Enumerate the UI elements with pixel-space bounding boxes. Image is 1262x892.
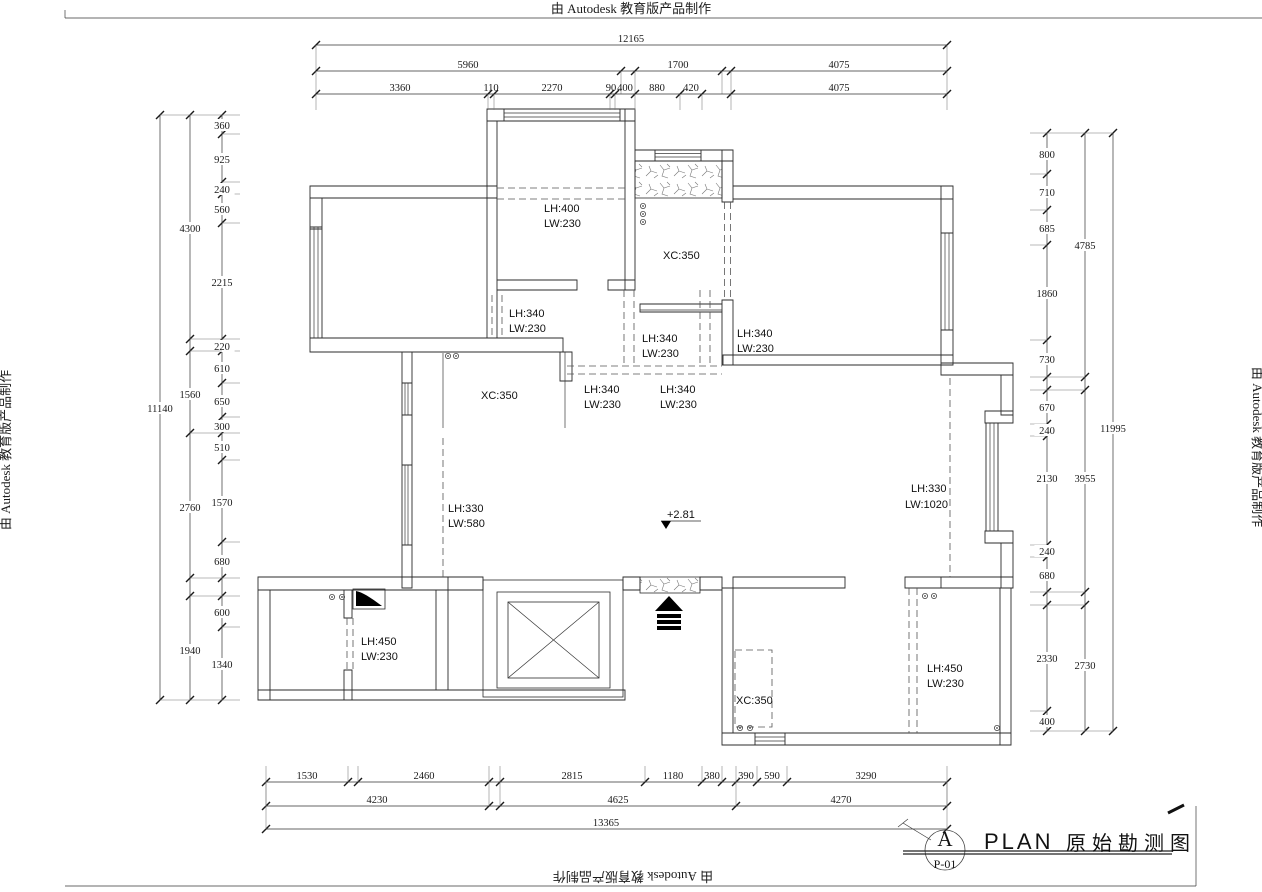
fixture-circle-dot [455, 355, 457, 357]
dim-text: 90 [606, 83, 617, 94]
watermark-bottom: 由 Autodesk 教育版产品制作 [553, 869, 713, 884]
dim-text: 730 [1039, 355, 1055, 366]
dim-text: 685 [1039, 224, 1055, 235]
stove-symbol [353, 589, 385, 609]
dim-text: 560 [214, 205, 230, 216]
dim-text: 1530 [297, 771, 318, 782]
dim-text: 600 [214, 608, 230, 619]
dim-text: 300 [214, 422, 230, 433]
dim-text: 110 [483, 83, 498, 94]
dim-text: 5960 [458, 60, 479, 71]
dimension-chain-right-outer: 11995 [1085, 129, 1132, 735]
dim-text: 4270 [831, 795, 852, 806]
dim-text: 2270 [542, 83, 563, 94]
plan-word: PLAN [984, 829, 1053, 854]
plan-label: LH:340 [737, 328, 772, 340]
plan-label-layer: LH:400LW:230XC:350LH:340LW:230LH:340LW:2… [361, 203, 964, 707]
dim-text: 880 [649, 83, 665, 94]
watermark-left: 由 Autodesk 教育版产品制作 [0, 370, 13, 530]
fixture-circle-dot [642, 221, 644, 223]
dimension-chain-bottom-mid: 423046254270 [262, 782, 951, 810]
plan-label: LW:230 [584, 399, 621, 411]
plan-label: LW:230 [660, 399, 697, 411]
dimension-chain-bottom-inner: 15302460281511803803905903290 [262, 766, 951, 786]
plan-label: LH:330 [448, 503, 483, 515]
plan-label: LH:340 [660, 384, 695, 396]
dim-text: 4785 [1075, 241, 1096, 252]
plan-label: XC:350 [736, 695, 773, 707]
plan-label: XC:350 [663, 250, 700, 262]
sheet-frame [65, 10, 1262, 886]
plan-label: LH:340 [584, 384, 619, 396]
plan-label: LH:340 [509, 308, 544, 320]
dim-text: 1700 [668, 60, 689, 71]
plan-label: LH:450 [927, 663, 962, 675]
dimension-chain-left-inner: 3609252405602215220610650300510157068060… [206, 111, 240, 704]
dim-text: 12165 [618, 34, 644, 45]
fixture-circle-dot [447, 355, 449, 357]
dim-text: 1940 [180, 646, 201, 657]
fixture-circle-dot [341, 596, 343, 598]
dim-text: 1180 [663, 771, 684, 782]
dim-text: 11995 [1100, 424, 1126, 435]
dim-text: 1570 [212, 498, 233, 509]
plan-label: LW:230 [642, 348, 679, 360]
dim-text: 710 [1039, 188, 1055, 199]
plan-label: XC:350 [481, 390, 518, 402]
fixture-circle-dot [924, 595, 926, 597]
dim-text: 220 [214, 342, 230, 353]
drawing-sheet: 由 Autodesk 教育版产品制作 由 Autodesk 教育版产品制作 由 … [0, 0, 1262, 892]
plan-label: LW:230 [509, 323, 546, 335]
dimension-chain-bottom-overall: 13365 [262, 782, 951, 833]
fixture-circle-dot [996, 727, 998, 729]
dim-text: 360 [214, 121, 230, 132]
detail-letter: A [937, 827, 953, 851]
floor-plan-canvas: 由 Autodesk 教育版产品制作 由 Autodesk 教育版产品制作 由 … [0, 0, 1262, 892]
drawing-title: 原始勘测图 [1066, 832, 1196, 855]
plan-label: LH:450 [361, 636, 396, 648]
dim-text: 4625 [608, 795, 629, 806]
dim-text: 3360 [390, 83, 411, 94]
plan-label: LH:340 [642, 333, 677, 345]
plan-label: +2.81 [667, 509, 695, 521]
dimension-chain-top-inner: 33601102270904008804204075 [312, 83, 951, 110]
window-glazing-lines [314, 113, 994, 741]
dim-text: 2330 [1037, 654, 1058, 665]
dim-text: 3955 [1075, 474, 1096, 485]
fixture-symbols [329, 203, 999, 730]
fixture-circle-dot [933, 595, 935, 597]
stone-hatch-top [635, 161, 722, 198]
dim-text: 670 [1039, 403, 1055, 414]
dim-text: 11140 [147, 404, 172, 415]
plan-label: LW:580 [448, 518, 485, 530]
fixture-circle-dot [642, 213, 644, 215]
plan-label: LH:330 [911, 483, 946, 495]
dim-text: 380 [704, 771, 720, 782]
dim-text: 390 [738, 771, 754, 782]
elevator-shaft [483, 580, 623, 697]
dim-text: 2130 [1037, 474, 1058, 485]
fixture-circle-dot [331, 596, 333, 598]
dim-text: 1860 [1037, 289, 1058, 300]
plan-label: LW:1020 [905, 499, 948, 511]
dimension-chain-top-overall: 12165 [312, 34, 951, 71]
plan-label: LW:230 [544, 218, 581, 230]
dim-text: 2760 [180, 503, 201, 514]
plan-label: LW:230 [927, 678, 964, 690]
dim-text: 4075 [829, 83, 850, 94]
fixture-circle-dot [642, 205, 644, 207]
fixture-circle-dot [749, 727, 751, 729]
watermark-right: 由 Autodesk 教育版产品制作 [1250, 367, 1262, 527]
dim-text: 680 [214, 557, 230, 568]
watermark-top: 由 Autodesk 教育版产品制作 [551, 1, 711, 16]
dim-text: 680 [1039, 571, 1055, 582]
dimension-chain-right-inner: 800710685186073067024021302406802330400 [1030, 129, 1063, 735]
fixture-circle-dot [739, 727, 741, 729]
dim-text: 800 [1039, 150, 1055, 161]
stone-hatch-entry [640, 577, 700, 593]
dim-text: 420 [683, 83, 699, 94]
dim-text: 1560 [180, 390, 201, 401]
dim-text: 650 [214, 397, 230, 408]
elevation-marker [661, 521, 701, 529]
title-block: A P-01 PLAN 原始勘测图 [898, 805, 1196, 871]
dim-text: 1340 [212, 660, 233, 671]
walls [258, 109, 1013, 745]
sheet-number: P-01 [934, 857, 957, 871]
dim-text: 13365 [593, 818, 619, 829]
dim-text: 2460 [414, 771, 435, 782]
dim-text: 925 [214, 155, 230, 166]
dim-text: 2815 [562, 771, 583, 782]
dim-text: 4075 [829, 60, 850, 71]
dim-text: 590 [764, 771, 780, 782]
dim-text: 2215 [212, 278, 233, 289]
plan-label: LW:230 [737, 343, 774, 355]
dim-text: 240 [1039, 547, 1055, 558]
dim-text: 4230 [367, 795, 388, 806]
plan-label: LW:230 [361, 651, 398, 663]
stairs-arrow-icon [655, 596, 683, 630]
plan-label: LH:400 [544, 203, 579, 215]
dim-text: 510 [214, 443, 230, 454]
dimension-chain-left-outer: 11140 [141, 111, 190, 704]
dim-text: 3290 [856, 771, 877, 782]
dim-text: 4300 [180, 224, 201, 235]
dim-text: 2730 [1075, 661, 1096, 672]
dim-text: 400 [617, 83, 633, 94]
dim-text: 400 [1039, 717, 1055, 728]
dim-text: 240 [1039, 426, 1055, 437]
dim-text: 610 [214, 364, 230, 375]
dim-text: 240 [214, 185, 230, 196]
